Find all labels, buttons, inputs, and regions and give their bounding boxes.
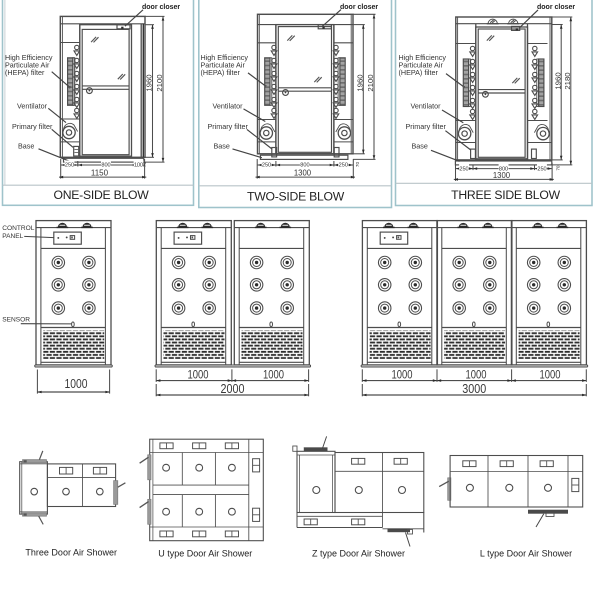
svg-text:(HEPA) filter: (HEPA) filter	[399, 68, 439, 77]
svg-text:250: 250	[339, 163, 348, 169]
svg-text:Primary filter: Primary filter	[406, 122, 447, 131]
svg-text:70: 70	[142, 162, 147, 168]
svg-text:Ventilator: Ventilator	[213, 101, 244, 110]
svg-text:Ventilator: Ventilator	[17, 101, 48, 110]
svg-text:door closer: door closer	[537, 4, 575, 11]
svg-text:Base: Base	[412, 142, 428, 151]
svg-text:250: 250	[262, 163, 271, 169]
svg-text:1000: 1000	[466, 368, 487, 382]
svg-text:(HEPA) filter: (HEPA) filter	[5, 68, 45, 77]
svg-text:250: 250	[537, 166, 546, 172]
svg-text:Z type Door Air Shower: Z type Door Air Shower	[312, 548, 405, 558]
svg-text:Base: Base	[214, 142, 230, 151]
svg-text:CONTROL: CONTROL	[2, 225, 35, 232]
svg-text:1960: 1960	[145, 74, 154, 91]
svg-text:1300: 1300	[294, 169, 312, 178]
svg-text:250: 250	[65, 163, 74, 169]
svg-text:2000: 2000	[221, 382, 245, 396]
svg-text:1000: 1000	[263, 368, 284, 382]
svg-text:1000: 1000	[392, 368, 413, 382]
svg-text:TWO-SIDE BLOW: TWO-SIDE BLOW	[247, 189, 345, 203]
svg-text:Three Door Air Shower: Three Door Air Shower	[25, 547, 117, 557]
svg-text:ONE-SIDE BLOW: ONE-SIDE BLOW	[54, 188, 150, 202]
svg-text:THREE SIDE BLOW: THREE SIDE BLOW	[451, 188, 560, 202]
svg-text:1000: 1000	[65, 377, 88, 391]
svg-text:Ventilator: Ventilator	[411, 101, 442, 110]
svg-text:1960: 1960	[356, 74, 365, 91]
svg-text:1300: 1300	[493, 171, 511, 180]
svg-text:2100: 2100	[155, 74, 164, 91]
svg-text:70: 70	[355, 162, 360, 168]
svg-text:L type Door Air Shower: L type Door Air Shower	[480, 548, 572, 558]
svg-text:SENSOR: SENSOR	[2, 316, 30, 323]
svg-text:door closer: door closer	[142, 4, 180, 11]
svg-text:1960: 1960	[553, 72, 562, 89]
svg-text:2180: 2180	[563, 72, 572, 89]
svg-text:(HEPA) filter: (HEPA) filter	[201, 68, 241, 77]
svg-text:U type Door Air Shower: U type Door Air Shower	[158, 548, 252, 558]
svg-text:door closer: door closer	[340, 4, 378, 11]
svg-text:2100: 2100	[366, 74, 375, 91]
svg-text:Base: Base	[18, 142, 34, 151]
svg-text:PANEL: PANEL	[2, 233, 23, 240]
svg-text:250: 250	[459, 166, 468, 172]
svg-text:70: 70	[556, 165, 561, 171]
svg-text:1150: 1150	[91, 169, 109, 178]
svg-text:1000: 1000	[540, 368, 561, 382]
svg-text:Primary filter: Primary filter	[208, 122, 249, 131]
svg-text:3000: 3000	[462, 382, 486, 396]
svg-text:Primary filter: Primary filter	[12, 122, 53, 131]
svg-text:1000: 1000	[188, 368, 209, 382]
